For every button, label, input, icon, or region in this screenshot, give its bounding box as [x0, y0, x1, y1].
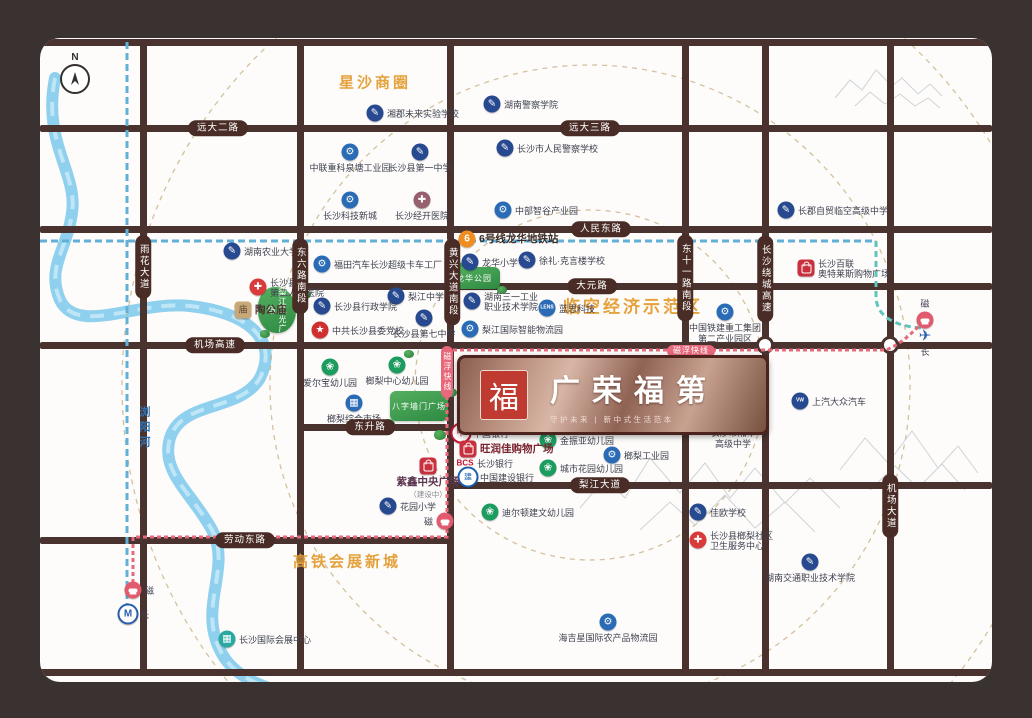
- compass: N: [58, 52, 92, 102]
- poi-label: 长沙科技新城: [323, 211, 377, 222]
- poi-label: 城市花园幼儿园: [560, 464, 623, 475]
- volkswagen-logo-icon: VW: [792, 393, 809, 410]
- hospital-cross-icon: ✚: [414, 192, 431, 209]
- kindergarten-icon: ❀: [389, 357, 406, 374]
- maglev-station-icon: [917, 312, 934, 329]
- market-icon: ▦: [346, 395, 363, 412]
- poi-label: 长沙百联奥特莱斯购物广场: [818, 259, 890, 280]
- poi-label: 6号线龙华地铁站: [479, 234, 558, 246]
- school-book-icon: ✎: [416, 310, 433, 327]
- poi-label: 陶公庙: [255, 305, 287, 317]
- factory-icon: ⚙: [717, 304, 734, 321]
- airport-logo-icon: ✈: [917, 328, 934, 345]
- school-cap-icon: ✎: [497, 140, 514, 157]
- poi-label: 长: [140, 610, 149, 621]
- factory-icon: ⚙: [342, 144, 359, 161]
- poi-label: 海吉星国际农产品物流园: [558, 633, 657, 644]
- poi-label: 湘郡未来实验学校: [387, 109, 459, 120]
- poi-label: 花园小学: [400, 502, 436, 513]
- road-name-pill: 机场高速: [185, 337, 245, 353]
- factory-icon: ⚙: [604, 447, 621, 464]
- shopping-mall-icon: [420, 458, 437, 475]
- poi-label: 长沙市人民警察学校: [517, 144, 598, 155]
- property-banner: 福 广荣福第 守护未来 | 新中式生活范本: [457, 355, 769, 435]
- shopping-mall-icon: [798, 260, 815, 277]
- compass-north-label: N: [58, 52, 92, 63]
- road-name-pill: 大元路: [567, 278, 617, 294]
- poi-label: 长沙县行政学院: [334, 302, 397, 313]
- poi-label: 长沙县榔梨社区卫生服务中心: [710, 531, 773, 552]
- school-book-icon: ✎: [462, 254, 479, 271]
- poi-label: 梨江中学: [408, 292, 444, 303]
- poi-label: 爱尔宝幼儿园: [303, 378, 357, 389]
- school-book-icon: ✎: [690, 504, 707, 521]
- factory-icon: ⚙: [495, 202, 512, 219]
- construction-bank-logo-icon: 建: [458, 467, 479, 488]
- map-outer-frame: 星沙商圈临空经济示范区高铁会展新城龙华公园八字墙门广场梨江风光广场远大二路远大三…: [0, 0, 1032, 718]
- poi-label: 徐礼·克言楼学校: [539, 256, 605, 267]
- poi-label: 榔梨工业园: [624, 451, 669, 462]
- school-book-icon: ✎: [380, 498, 397, 515]
- poi-label: 中国建设银行: [480, 473, 534, 484]
- metro-station-logo-icon: M: [118, 604, 139, 625]
- poi-label: 金振亚幼儿园: [560, 436, 614, 447]
- metro-line6-station-icon: 6: [459, 231, 476, 248]
- school-book-icon: ✎: [778, 202, 795, 219]
- school-book-icon: ✎: [412, 144, 429, 161]
- poi-label: 佳欧学校: [710, 508, 746, 519]
- poi-label: 长: [920, 347, 929, 358]
- road-name-pill: 东六路南段: [292, 238, 308, 314]
- temple-icon: 庙: [235, 302, 252, 319]
- kindergarten-icon: ❀: [482, 504, 499, 521]
- school-cap-icon: ✎: [484, 96, 501, 113]
- poi-label: 紫鑫中央广场（建设中）: [397, 477, 460, 500]
- school-cap-icon: ✎: [519, 252, 536, 269]
- party-school-star-icon: ★: [312, 322, 329, 339]
- poi-label: 榔梨中心幼儿园: [365, 376, 428, 387]
- poi-label: 磁: [920, 299, 929, 310]
- property-subtitle: 守护未来 | 新中式生活范本: [550, 414, 718, 425]
- kindergarten-icon: ❀: [322, 359, 339, 376]
- school-cap-icon: ✎: [314, 298, 331, 315]
- poi-label: 梨江国际智能物流园: [482, 325, 563, 336]
- poi-label: 长沙银行: [477, 459, 513, 470]
- poi-label: 湖南交通职业技术学院: [765, 573, 855, 584]
- poi-label: 磁: [424, 517, 433, 528]
- road-name-pill: 东升路: [345, 419, 395, 435]
- metro-line6-airport-branch: [876, 241, 921, 328]
- poi-label: 中国铁建重工集团第二产业园区: [689, 323, 761, 344]
- poi-label: 中部智谷产业园: [515, 206, 578, 217]
- road-name-pill: 梨江大道: [570, 477, 630, 493]
- factory-icon: ⚙: [462, 321, 479, 338]
- poi-label: 长沙县第七中学: [392, 329, 455, 340]
- poi-label: 蓝思科技: [559, 304, 595, 315]
- compass-ring: [60, 64, 90, 94]
- poi-label: 旺润佳购物广场: [480, 444, 554, 456]
- factory-icon: ⚙: [342, 192, 359, 209]
- maglev-line-label: 磁浮快线: [441, 346, 453, 398]
- factory-icon: ⚙: [600, 614, 617, 631]
- school-cap-icon: ✎: [802, 554, 819, 571]
- poi-label: 长沙经开医院: [395, 211, 449, 222]
- school-cap-icon: ✎: [464, 293, 481, 310]
- poi-label: 龙华小学: [482, 258, 518, 269]
- road-name-pill: 远大二路: [188, 120, 248, 136]
- poi-label: 湖南三一工业职业技术学院: [484, 292, 538, 313]
- school-book-icon: ✎: [367, 105, 384, 122]
- road-name-pill: 劳动东路: [215, 532, 275, 548]
- road-name-pill: 东十一路南段: [677, 235, 693, 322]
- lens-tech-icon: LENS: [539, 300, 556, 317]
- location-map-canvas: 星沙商圈临空经济示范区高铁会展新城龙华公园八字墙门广场梨江风光广场远大二路远大三…: [40, 38, 992, 682]
- factory-icon: ⚙: [314, 256, 331, 273]
- kindergarten-icon: ❀: [540, 460, 557, 477]
- property-title: 广荣福第: [550, 366, 718, 410]
- maglev-station-icon: [125, 582, 142, 599]
- road-name-pill: 长沙绕城高速: [757, 236, 773, 323]
- expo-center-icon: ▦: [219, 631, 236, 648]
- school-cap-icon: ✎: [224, 243, 241, 260]
- poi-label: 湖南警察学院: [504, 100, 558, 111]
- poi-label: 长郡自贸临空高级中学: [798, 206, 888, 217]
- road-name-pill: 雨花大道: [135, 235, 151, 299]
- poi-label: 长沙县第一中学: [388, 163, 451, 174]
- road-name-pill: 人民东路: [571, 221, 631, 237]
- poi-label: 中联重科泉塘工业园: [309, 163, 390, 174]
- poi-label: 长沙国际会展中心: [239, 635, 311, 646]
- compass-needle-icon: [66, 70, 84, 88]
- poi-label: 上汽大众汽车: [812, 397, 866, 408]
- road-name-pill: 远大三路: [560, 120, 620, 136]
- hospital-cross-icon: ✚: [250, 279, 267, 296]
- fortune-seal-icon: 福: [480, 370, 528, 420]
- poi-label: 磁: [145, 586, 154, 597]
- poi-label: 湖南农业大学: [244, 247, 298, 258]
- hospital-cross-icon: ✚: [690, 532, 707, 549]
- poi-label: 福田汽车长沙超级卡车工厂: [334, 260, 442, 271]
- maglev-station-icon: [437, 513, 454, 530]
- road-name-pill: 机场大道: [882, 474, 898, 538]
- road-name-pill: 黄兴大道南段: [444, 239, 460, 326]
- poi-label: 迪尔顿建文幼儿园: [502, 508, 574, 519]
